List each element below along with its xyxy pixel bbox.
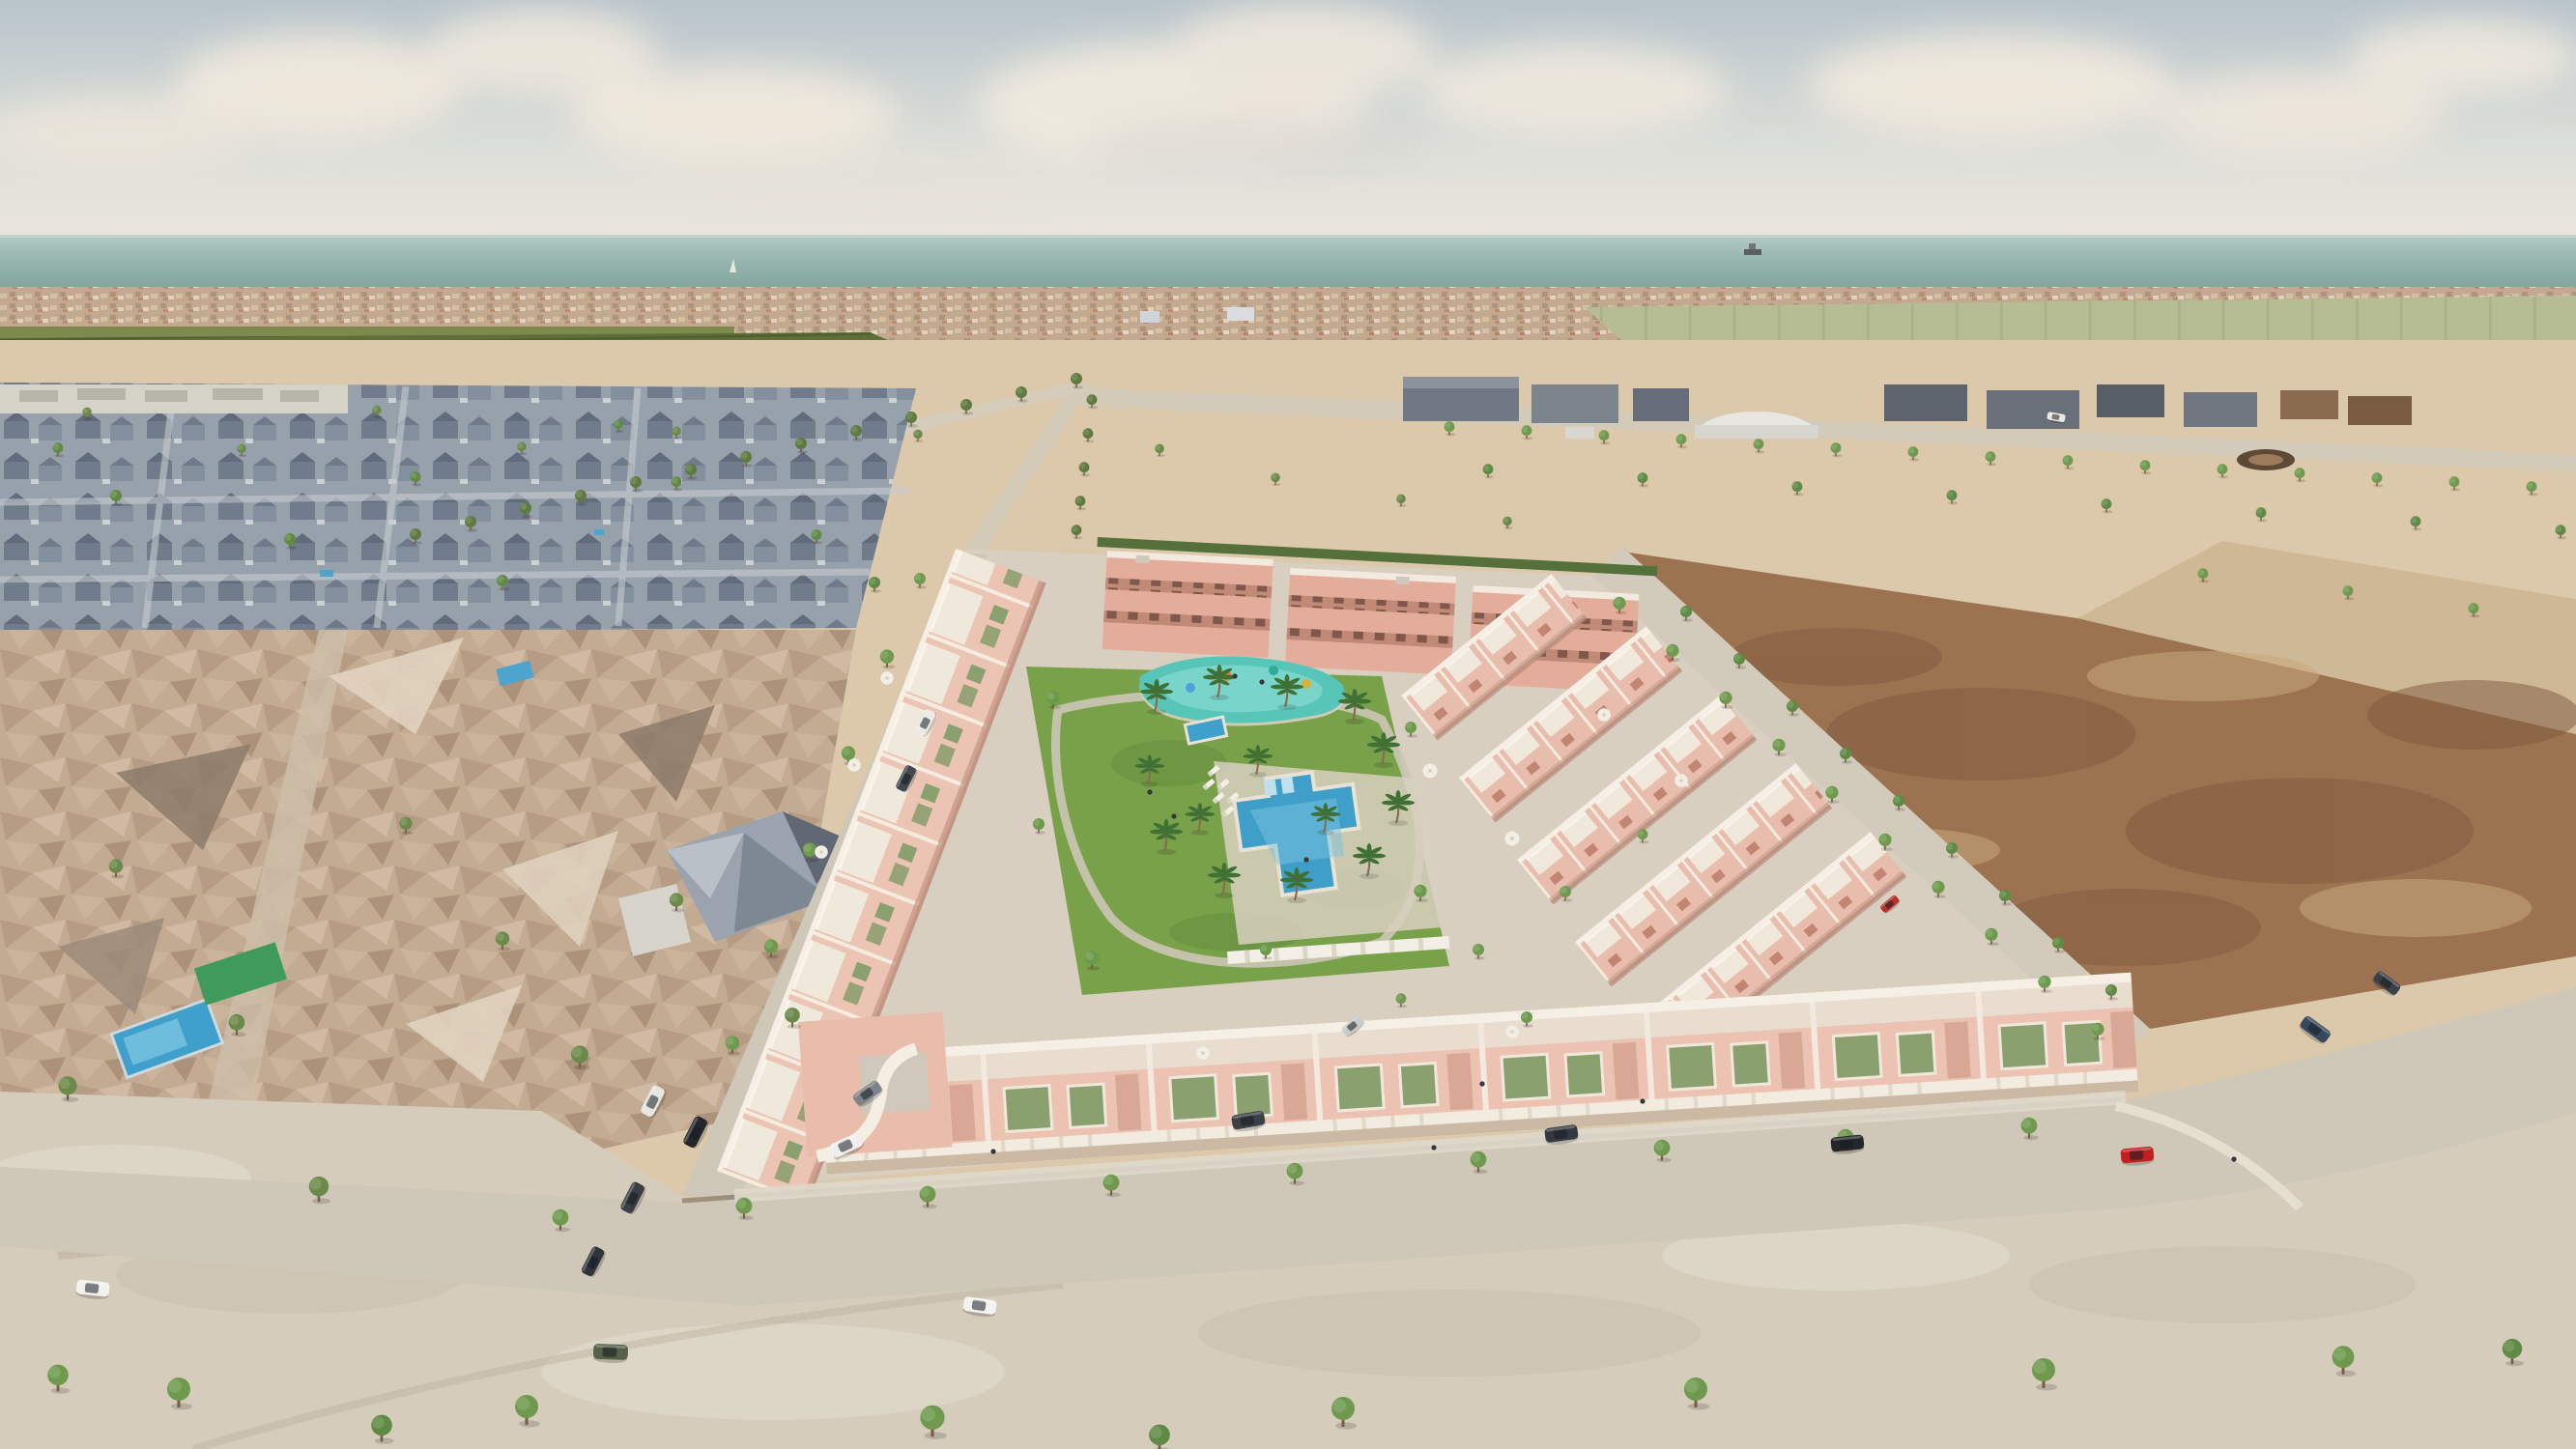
- person-sprite: [1232, 673, 1237, 678]
- umb-sprite: [1597, 708, 1611, 722]
- umb-sprite: [1423, 764, 1438, 779]
- person-sprite: [1303, 857, 1308, 862]
- green-suv-sprite: [593, 1344, 628, 1364]
- umb-sprite: [1505, 832, 1520, 846]
- person-sprite: [1479, 1081, 1484, 1086]
- person-sprite: [2231, 1156, 2236, 1161]
- umb-sprite: [1505, 1025, 1519, 1038]
- umb-sprite: [880, 671, 894, 685]
- sea: [0, 235, 2576, 293]
- person-sprite: [1640, 1098, 1645, 1103]
- person-sprite: [1259, 679, 1264, 684]
- umb-sprite: [815, 845, 828, 859]
- render-stage: [0, 0, 2576, 1449]
- horizon-haze: [0, 169, 2576, 237]
- person-sprite: [990, 1149, 995, 1153]
- umb-sprite: [1674, 774, 1688, 787]
- person-sprite: [1171, 813, 1176, 818]
- bluegray-neighbourhood: [0, 383, 916, 634]
- umb-sprite: [1196, 1046, 1210, 1060]
- person-sprite: [1431, 1145, 1436, 1150]
- aerial-render: [0, 0, 2576, 1449]
- umb-sprite: [847, 758, 861, 772]
- person-sprite: [1147, 789, 1152, 794]
